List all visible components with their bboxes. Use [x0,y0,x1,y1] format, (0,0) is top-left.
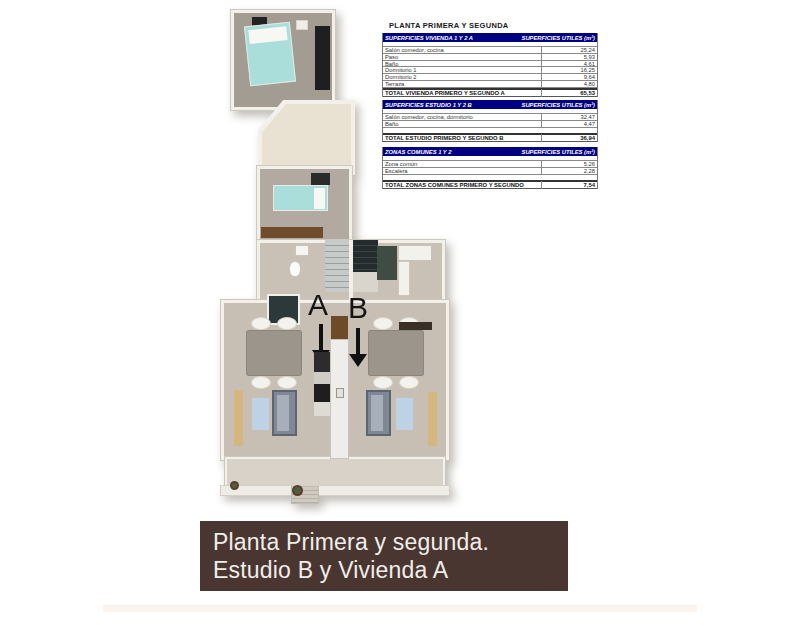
stair-landing [352,272,378,292]
nightstand [296,20,308,30]
chair [373,376,393,389]
total-value: 36,94 [541,134,597,142]
plant-leaf [294,487,301,494]
table-header: SUPERFICIES ESTUDIO 1 Y 2 B SUPERFICIES … [383,100,597,109]
staircase-lower [352,240,378,272]
row-label: Salón comedor, cocina [383,47,541,53]
row-label: Escalera [383,168,541,174]
table-header-left: SUPERFICIES VIVIENDA 1 Y 2 A [385,35,473,41]
wardrobe-wood [261,227,323,238]
kitchen-appliance [314,384,330,402]
caption-banner: Planta Primera y segunda. Estudio B y Vi… [200,521,568,591]
chair [277,317,297,330]
table-header: SUPERFICIES VIVIENDA 1 Y 2 A SUPERFICIES… [383,33,597,42]
chair [399,376,419,389]
wall-stub [399,262,409,295]
table-row: Dormitorio 116,25 [383,67,597,74]
sofa-cushion [371,395,383,431]
table-row: Baño4,47 [383,121,597,128]
surface-table-zonas-comunes: ZONAS COMUNES 1 Y 2 SUPERFICIES UTILES (… [382,147,598,189]
pillow [314,188,325,209]
kitchen-unit [314,372,330,384]
surface-table-estudio: SUPERFICIES ESTUDIO 1 Y 2 B SUPERFICIES … [382,100,598,142]
sofa-cushion [277,395,289,431]
closet-white [399,246,431,260]
plant [292,485,303,496]
kitchen-sink [336,388,344,398]
table-total-row: TOTAL VIVIENDA PRIMERO Y SEGUNDO A65,53 [383,88,597,97]
row-label: Paso [383,54,541,60]
row-label: Zona común [383,161,541,167]
total-value: 65,53 [541,89,597,97]
banner-line-1: Planta Primera y segunda. [213,528,568,556]
row-label: Salón comedor, cocina, dormitorio [383,114,541,120]
table-header-right: SUPERFICIES UTILES (m²) [522,149,595,155]
total-label: TOTAL ZONAS COMUNES PRIMERO Y SEGUNDO [383,181,541,189]
total-label: TOTAL VIVIENDA PRIMERO Y SEGUNDO A [383,89,541,97]
table-total-row: TOTAL ZONAS COMUNES PRIMERO Y SEGUNDO7,5… [383,180,597,189]
unit-a-label: A [308,288,328,322]
headboard [311,173,330,185]
table-total-row: TOTAL ESTUDIO PRIMERO Y SEGUNDO B36,94 [383,133,597,142]
rug [252,398,269,430]
row-value: 16,25 [541,67,597,73]
row-label: Dormitorio 2 [383,74,541,80]
table-header-left: SUPERFICIES ESTUDIO 1 Y 2 B [385,102,472,108]
pillar [428,392,437,446]
bed-top [244,22,296,86]
table-row: Paso5,93 [383,54,597,61]
total-label: TOTAL ESTUDIO PRIMERO Y SEGUNDO B [383,134,541,142]
dining-table [247,331,301,375]
row-label: Dormitorio 1 [383,67,541,73]
bed-mid [273,185,328,211]
sofa [366,390,391,436]
chair [373,317,393,330]
row-label: Baño [383,121,541,127]
row-value: 2,28 [541,168,597,174]
chair [277,376,297,389]
chair [251,317,271,330]
table-header-right: SUPERFICIES UTILES (m²) [522,102,595,108]
dining-table [369,331,423,375]
pillow [248,26,287,44]
table-row: Zona común5,26 [383,161,597,168]
row-value: 5,26 [541,161,597,167]
terrace-wall [221,486,449,495]
sink [296,246,308,255]
row-value: 4,47 [541,121,597,127]
plant-leaf [232,483,237,488]
table-row: Salón comedor, cocina, dormitorio32,47 [383,114,597,121]
row-value: 4,61 [541,61,597,67]
sofa [272,390,297,436]
table-row: Baño4,61 [383,61,597,68]
table-header-right: SUPERFICIES UTILES (m²) [522,35,595,41]
plant [230,481,239,490]
table-row: Salón comedor, cocina25,24 [383,47,597,54]
unit-b-label: B [348,291,368,325]
table-row: Terraza4,80 [383,81,597,88]
staircase [325,240,352,292]
row-value: 32,47 [541,114,597,120]
table-row: Dormitorio 29,64 [383,74,597,81]
kitchen-unit [314,402,330,416]
wardrobe-dark [315,26,330,90]
page-divider [103,605,697,612]
banner-line-2: Estudio B y Vivienda A [213,556,568,584]
shelf [399,322,432,330]
arrow-b-icon [356,328,360,354]
total-value: 7,54 [541,181,597,189]
table-header: ZONAS COMUNES 1 Y 2 SUPERFICIES UTILES (… [383,147,597,156]
row-value: 4,80 [541,81,597,87]
row-value: 5,93 [541,54,597,60]
rug [396,398,413,430]
closet-green [377,246,397,280]
table-header-left: ZONAS COMUNES 1 Y 2 [385,149,451,155]
row-label: Baño [383,61,541,67]
row-label: Terraza [383,81,541,87]
arrow-b-icon [349,354,367,367]
kitchen-cabinet [331,316,348,340]
arrow-a-icon [319,324,323,350]
table-row: Escalera2,28 [383,168,597,175]
row-value: 25,24 [541,47,597,53]
terrace [225,457,445,488]
page-title: PLANTA PRIMERA Y SEGUNDA [389,21,509,30]
toilet [290,262,300,276]
chair [251,376,271,389]
pillar [234,390,243,446]
kitchen-counter [331,340,348,458]
kitchen-appliance [314,352,330,372]
surface-table-vivienda: SUPERFICIES VIVIENDA 1 Y 2 A SUPERFICIES… [382,33,598,97]
row-value: 9,64 [541,74,597,80]
